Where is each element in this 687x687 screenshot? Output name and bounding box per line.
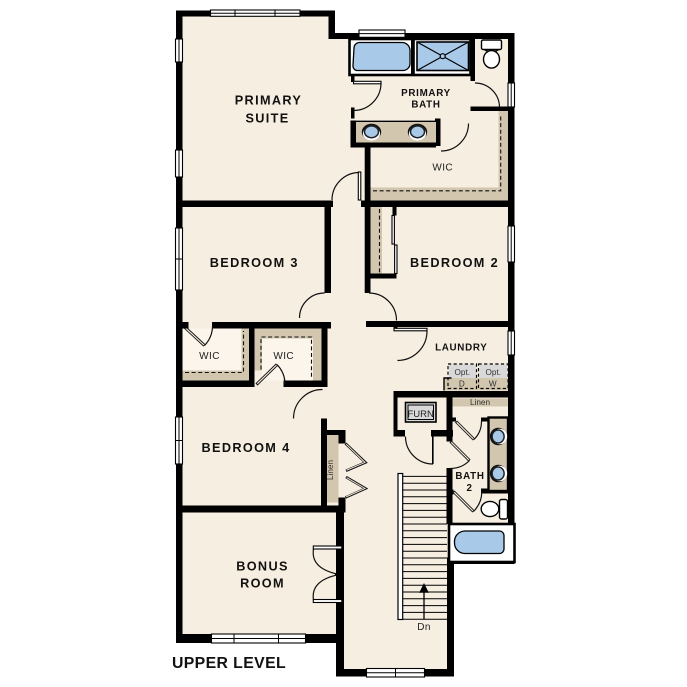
svg-text:Dn: Dn bbox=[417, 622, 431, 633]
svg-text:PRIMARY: PRIMARY bbox=[235, 94, 303, 108]
svg-text:SUITE: SUITE bbox=[245, 111, 289, 125]
svg-text:BEDROOM 3: BEDROOM 3 bbox=[210, 256, 299, 270]
svg-text:WIC: WIC bbox=[432, 163, 453, 174]
svg-text:D: D bbox=[459, 379, 465, 388]
svg-text:W: W bbox=[489, 379, 497, 388]
svg-text:2: 2 bbox=[467, 483, 473, 494]
svg-text:WIC: WIC bbox=[273, 351, 294, 362]
svg-text:LAUNDRY: LAUNDRY bbox=[435, 342, 487, 353]
svg-text:BATH: BATH bbox=[411, 100, 440, 111]
svg-text:Opt.: Opt. bbox=[455, 368, 470, 377]
svg-text:ROOM: ROOM bbox=[240, 577, 285, 591]
svg-text:BEDROOM 4: BEDROOM 4 bbox=[202, 441, 291, 455]
svg-text:Linen: Linen bbox=[470, 398, 490, 407]
svg-text:BATH: BATH bbox=[455, 471, 484, 482]
svg-text:Linen: Linen bbox=[326, 460, 335, 480]
svg-text:PRIMARY: PRIMARY bbox=[401, 88, 451, 99]
svg-text:WIC: WIC bbox=[199, 351, 220, 362]
svg-text:BEDROOM 2: BEDROOM 2 bbox=[410, 256, 499, 270]
svg-text:BONUS: BONUS bbox=[236, 559, 289, 573]
svg-text:FURN: FURN bbox=[408, 409, 435, 420]
svg-text:UPPER LEVEL: UPPER LEVEL bbox=[172, 655, 286, 672]
svg-text:Opt.: Opt. bbox=[486, 368, 501, 377]
